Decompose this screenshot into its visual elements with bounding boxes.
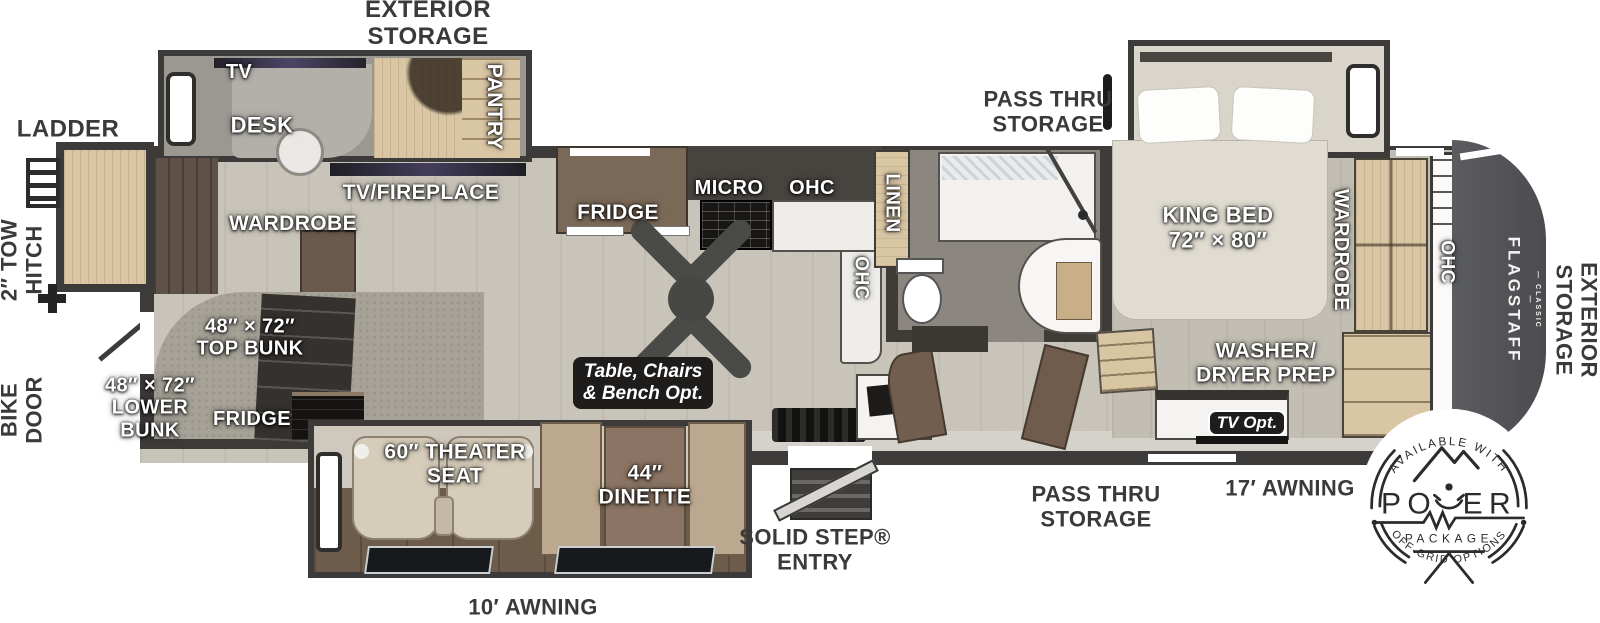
ladder-icon xyxy=(26,158,60,208)
label-micro: MICRO xyxy=(695,177,764,199)
dinette-bench-right xyxy=(688,422,746,556)
pillow-right xyxy=(1231,86,1316,144)
tv-on-dresser xyxy=(1196,436,1288,444)
label-desk: DESK xyxy=(231,114,294,139)
label-theater-seat: 60″ THEATER SEAT xyxy=(384,440,525,487)
label-ladder: LADDER xyxy=(17,117,119,144)
svg-text:PACKAGE: PACKAGE xyxy=(1405,532,1493,546)
label-lower-bunk: 48″ × 72″ LOWER BUNK xyxy=(105,374,195,441)
label-dinette: 44″ DINETTE xyxy=(599,461,692,508)
tv-option-box: TV Opt. xyxy=(1208,410,1286,436)
label-exterior-storage-top: EXTERIOR STORAGE xyxy=(365,0,491,51)
table-chairs-option-box: Table, Chairs & Bench Opt. xyxy=(573,357,713,409)
label-top-bunk: 48″ × 72″ TOP BUNK xyxy=(197,316,304,361)
bath-platform xyxy=(912,326,988,352)
svg-text:PO: PO xyxy=(1381,487,1437,520)
label-king-bed: KING BED 72″ × 80″ xyxy=(1163,203,1274,252)
svg-text:ER: ER xyxy=(1463,487,1517,520)
hitch-pin-icon-v xyxy=(48,284,57,313)
toilet-bowl xyxy=(902,274,942,324)
label-fridge-kitchen: FRIDGE xyxy=(577,201,659,225)
shower-tile xyxy=(942,156,1058,180)
kitchen-counter-top xyxy=(772,200,882,252)
rear-wardrobe-cabinet xyxy=(154,158,218,294)
label-awning-17: 17′ AWNING xyxy=(1225,477,1354,502)
toilet-tank xyxy=(896,258,944,274)
rear-storage-box xyxy=(56,142,154,292)
rug-right xyxy=(554,546,716,574)
rear-slide-window xyxy=(166,72,196,146)
shower-head xyxy=(1078,210,1088,220)
floorplan: EXTERIOR STORAGE LADDER 2″ TOW HITCH BIK… xyxy=(0,0,1600,623)
dinette-bench-left xyxy=(540,422,602,556)
awning-rail-slit xyxy=(1148,454,1236,462)
label-ohc-front: OHC xyxy=(1436,240,1457,283)
bed-slide-window xyxy=(1346,64,1380,138)
entry-step-grill xyxy=(772,408,866,442)
label-ohc-island: OHC xyxy=(850,256,871,299)
label-tv-fireplace: TV/FIREPLACE xyxy=(343,181,499,205)
power-package-badge: AVAILABLE WITH OFF-GRID OPTIONS PO ER PA… xyxy=(1358,406,1540,588)
bedroom-steps xyxy=(1096,328,1158,394)
label-tow-hitch: 2″ TOW HITCH xyxy=(0,219,47,301)
label-washer-dryer: WASHER/ DRYER PREP xyxy=(1196,339,1336,386)
front-wardrobe-cabinet xyxy=(1354,158,1428,332)
label-fridge-bunk: FRIDGE xyxy=(213,408,291,430)
label-bike-door: BIKE DOOR xyxy=(0,376,47,444)
label-wardrobe-front: WARDROBE xyxy=(1330,189,1352,311)
label-pass-thru-bottom: PASS THRU STORAGE xyxy=(1031,482,1160,531)
flagstaff-logo: FLAGSTAFF xyxy=(1504,237,1523,364)
flagstaff-classic: — CLASSIC — xyxy=(1525,267,1541,334)
label-wardrobe-rear: WARDROBE xyxy=(229,212,357,236)
pillow-left xyxy=(1137,86,1222,144)
fireplace-bar xyxy=(330,163,526,176)
label-pass-thru-top: PASS THRU STORAGE xyxy=(983,87,1112,136)
entry-door-gap xyxy=(788,446,872,466)
rug-left xyxy=(364,546,494,574)
window-slit-top-2 xyxy=(1396,148,1444,156)
label-exterior-storage-right: EXTERIOR STORAGE xyxy=(1551,262,1600,378)
living-slide-window xyxy=(316,452,342,552)
ceiling-fan-icon xyxy=(610,218,770,378)
window-slit-top-1 xyxy=(570,148,650,156)
label-pantry: PANTRY xyxy=(482,64,506,150)
label-awning-10: 10′ AWNING xyxy=(468,596,597,621)
label-tv: TV xyxy=(226,61,252,83)
label-solid-step: SOLID STEP® ENTRY xyxy=(739,525,890,574)
bike-door-opening xyxy=(140,312,154,374)
label-ohc-kitchen: OHC xyxy=(789,177,835,199)
slide-closet xyxy=(374,58,462,158)
bed-head-shelf xyxy=(1140,52,1332,62)
vanity-counter xyxy=(1056,262,1092,320)
label-linen: LINEN xyxy=(881,174,902,233)
